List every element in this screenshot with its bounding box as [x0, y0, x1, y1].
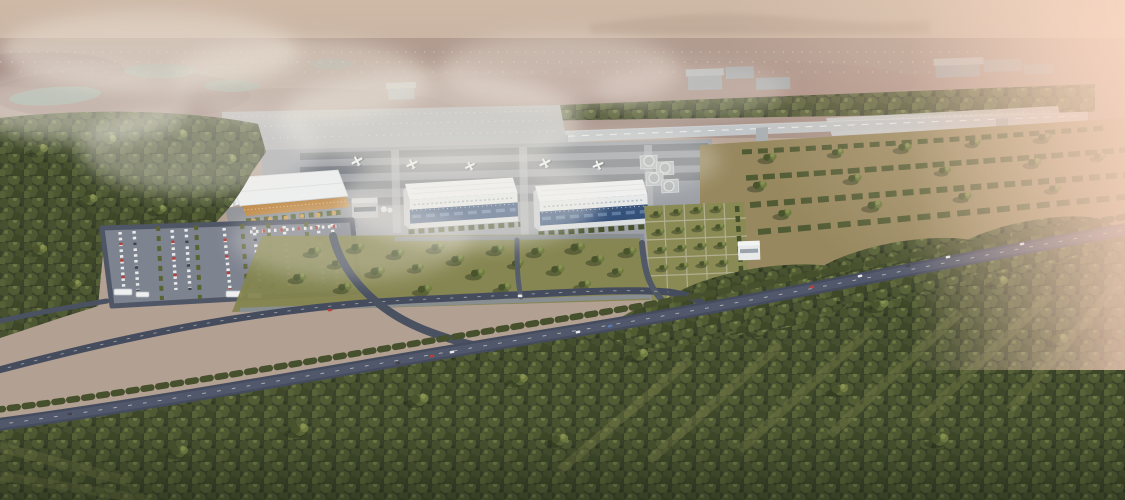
rendering-canvas	[0, 0, 1125, 500]
sunrise-glow	[725, 0, 1125, 330]
aerial-rendering-image	[0, 0, 1125, 500]
bottom-vignette	[0, 430, 1125, 500]
